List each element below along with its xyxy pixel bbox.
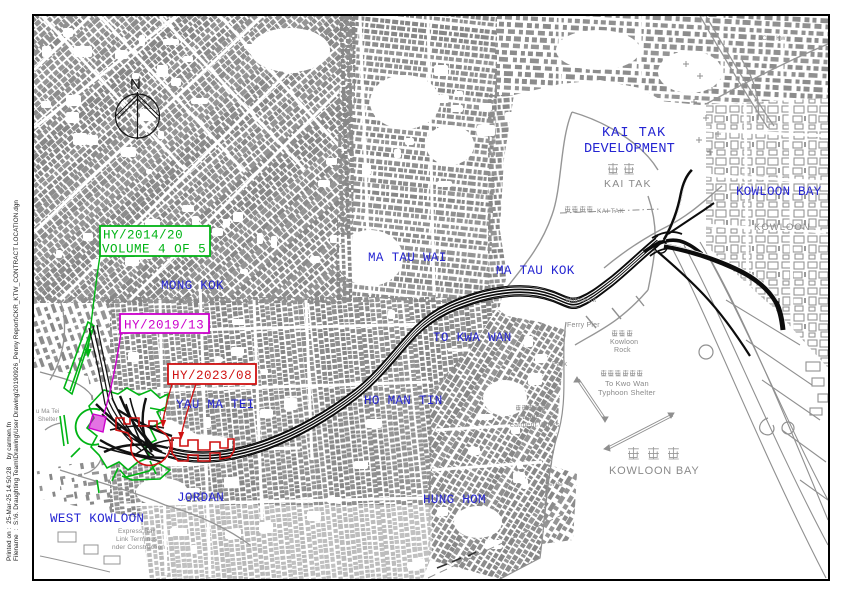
svg-text:KOWLOON BAY: KOWLOON BAY [736,185,822,199]
svg-text:To Kwo Wan: To Kwo Wan [605,379,649,388]
svg-text:KOWLOON BAY: KOWLOON BAY [609,465,700,477]
svg-text:Shelter: Shelter [38,417,58,423]
svg-text:KAI TAK: KAI TAK [602,126,666,141]
svg-text:Kowloon: Kowloon [610,339,638,346]
svg-text:MA TAU KOK: MA TAU KOK [496,264,575,278]
svg-text:JORDAN: JORDAN [177,491,224,505]
svg-text:TO KWA WAN: TO KWA WAN [433,331,512,345]
svg-text:WEST KOWLOON: WEST KOWLOON [50,512,144,526]
svg-text:KAI TAK: KAI TAK [597,208,624,215]
svg-text:HY/2023/08: HY/2023/08 [172,369,252,383]
svg-text:KAI TAK: KAI TAK [604,178,652,190]
svg-text:YAU MA TEI: YAU MA TEI [176,398,255,412]
svg-text:Express Rail: Express Rail [118,528,156,535]
svg-text:HY/2014/20: HY/2014/20 [103,229,183,243]
svg-text:ewage: ewage [518,414,540,421]
svg-text:HO MAN TIN: HO MAN TIN [364,394,443,408]
svg-text:HUNG HOM: HUNG HOM [423,493,486,507]
svg-text:HY/2019/13: HY/2019/13 [124,319,204,333]
svg-text:DEVELOPMENT: DEVELOPMENT [584,142,675,157]
svg-text:MA TAU WAI: MA TAU WAI [368,251,447,265]
svg-text:VOLUME 4 OF 5: VOLUME 4 OF 5 [102,243,206,257]
svg-text:nder Construction: nder Construction [112,544,165,551]
svg-text:eatment Works: eatment Works [510,422,560,429]
svg-text:Typhoon Shelter: Typhoon Shelter [598,388,656,397]
svg-text:MONG KOK: MONG KOK [161,279,224,293]
svg-text:Verde: Verde [545,481,563,488]
svg-text:N: N [130,76,141,93]
svg-text:KOWLOON: KOWLOON [754,222,811,233]
svg-text:Rock: Rock [614,347,631,354]
svg-text:Park: Park [552,361,567,368]
svg-text:Cha Kw: Cha Kw [762,35,786,42]
svg-text:Waterfront: Waterfront [565,297,596,304]
svg-text:u Ma Tei: u Ma Tei [36,409,59,415]
svg-text:Link Terminus: Link Terminus [116,536,158,543]
